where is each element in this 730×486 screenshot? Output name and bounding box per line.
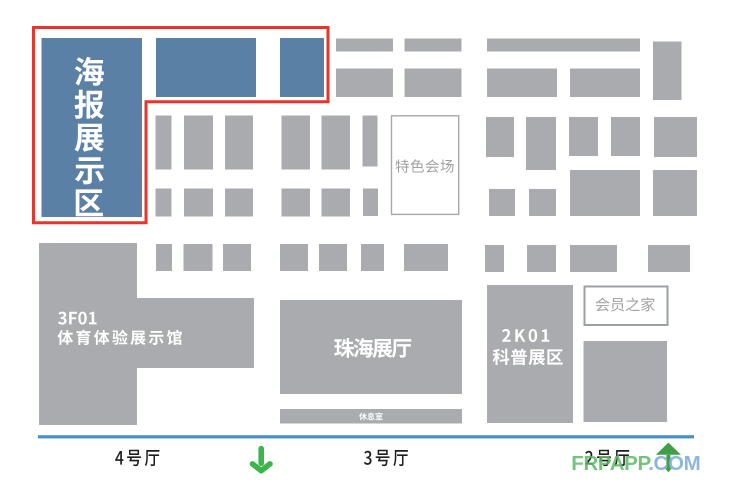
svg-text:FRPAPP.COM: FRPAPP.COM: [571, 452, 700, 475]
